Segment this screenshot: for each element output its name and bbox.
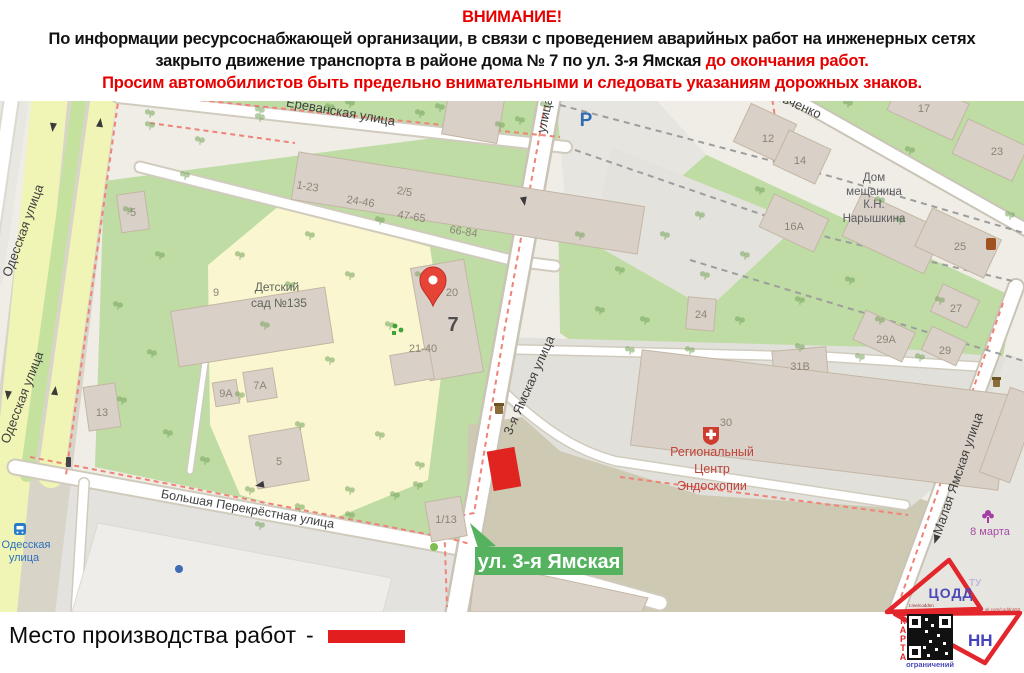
street-banner-label: ул. 3-я Ямская bbox=[478, 551, 621, 573]
endoscopy-label-3: Эндоскопии bbox=[677, 479, 747, 493]
waste-bin-icon-2 bbox=[992, 377, 1001, 387]
legend-label: Место производства работ bbox=[9, 622, 296, 648]
bldg-label-29a: 29А bbox=[876, 334, 896, 346]
legend-red-bar bbox=[328, 630, 405, 643]
legend-band: Место производства работ- bbox=[0, 612, 1024, 673]
kindergarten-label-1: Детский bbox=[255, 280, 299, 294]
green-dot bbox=[430, 543, 438, 551]
naryshkin-label-3: К.Н. bbox=[863, 199, 884, 211]
bldg-label-12: 12 bbox=[762, 133, 774, 145]
map-image: P 1-23 2/5 24-46 47-65 66-84 20 7 21-40 … bbox=[0, 95, 1024, 612]
transit-stop-icon bbox=[14, 523, 26, 535]
bldg-label-14: 14 bbox=[794, 155, 806, 167]
bldg-label-30: 30 bbox=[720, 417, 732, 429]
bldg-label-24: 24 bbox=[695, 309, 707, 321]
naryshkin-label-4: Нарышкина bbox=[843, 213, 906, 225]
bldg-label-9: 9 bbox=[213, 287, 219, 299]
bldg-label-9a: 9А bbox=[219, 388, 233, 400]
endoscopy-label-2: Центр bbox=[694, 462, 730, 476]
bldg-label-13: 13 bbox=[96, 407, 108, 419]
bldg-label-2-5: 2/5 bbox=[396, 185, 413, 199]
bldg-label-31v: 31В bbox=[790, 361, 810, 373]
notice-line3-red: до окончания работ. bbox=[706, 52, 869, 70]
notice-header: ВНИМАНИЕ! По информации ресурсоснабжающе… bbox=[0, 0, 1024, 101]
notice-title: ВНИМАНИЕ! bbox=[0, 6, 1024, 28]
bldg-label-20: 20 bbox=[446, 287, 458, 299]
traffic-light-icon bbox=[66, 457, 71, 467]
bldg-label-27: 27 bbox=[950, 303, 962, 315]
entrance-dot bbox=[175, 565, 183, 573]
legend-dash: - bbox=[306, 622, 314, 648]
endoscopy-label-1: Региональный bbox=[670, 445, 754, 459]
bldg-label-17: 17 bbox=[918, 103, 930, 115]
logo-qr-code bbox=[907, 614, 953, 660]
stop-label-2: улица bbox=[9, 552, 40, 564]
bldg-label-7: 7 bbox=[447, 314, 458, 336]
notice-line2: По информации ресурсоснабжающей организа… bbox=[0, 28, 1024, 50]
logo-nn-text: НН bbox=[968, 631, 993, 650]
shop-icon bbox=[986, 238, 996, 250]
logo-vk-text: vk.com/coddnn52 bbox=[985, 607, 1021, 612]
waste-bin-icon bbox=[494, 403, 504, 414]
kindergarten-label-2: сад №135 bbox=[251, 296, 307, 310]
notice-line3-black: закрыто движение транспорта в районе дом… bbox=[155, 52, 705, 70]
medical-cross-icon bbox=[703, 427, 719, 445]
stop-label-1: Одесская bbox=[2, 539, 51, 551]
naryshkin-label-1: Дом bbox=[863, 172, 885, 184]
bldg-label-25: 25 bbox=[954, 241, 966, 253]
logo-codd-text: ЦОДД bbox=[929, 585, 974, 601]
traffic-notice-page: ВНИМАНИЕ! По информации ресурсоснабжающе… bbox=[0, 0, 1024, 673]
bldg-label-29: 29 bbox=[939, 345, 951, 357]
naryshkin-label-2: мещанина bbox=[846, 186, 902, 198]
logo-telegram-text: t.me/coddnn bbox=[909, 603, 934, 608]
parking-icon: P bbox=[580, 110, 593, 131]
legend-line: Место производства работ- bbox=[9, 622, 405, 649]
logo-karta-vertical-text: КАРТА bbox=[898, 616, 908, 661]
bldg-label-5s: 5 bbox=[276, 456, 282, 468]
logo-restrictions-text: ограничений bbox=[906, 660, 954, 669]
bldg-label-1-13: 1/13 bbox=[435, 514, 456, 526]
bldg-label-5n: 5 bbox=[130, 207, 136, 219]
bldg-label-7a: 7А bbox=[253, 380, 267, 392]
codd-logo: ТУ ЦОДД t.me/coddnn vk.com/coddnn52 КАРТ… bbox=[879, 556, 1024, 673]
march8-label: 8 марта bbox=[970, 526, 1011, 538]
bldg-label-21-40: 21-40 bbox=[409, 343, 437, 355]
bldg-label-23: 23 bbox=[991, 146, 1003, 158]
map-svg: P 1-23 2/5 24-46 47-65 66-84 20 7 21-40 … bbox=[0, 95, 1024, 612]
notice-line4: Просим автомобилистов быть предельно вни… bbox=[0, 72, 1024, 94]
notice-line3: закрыто движение транспорта в районе дом… bbox=[0, 50, 1024, 72]
bldg-label-16a: 16А bbox=[784, 221, 804, 233]
